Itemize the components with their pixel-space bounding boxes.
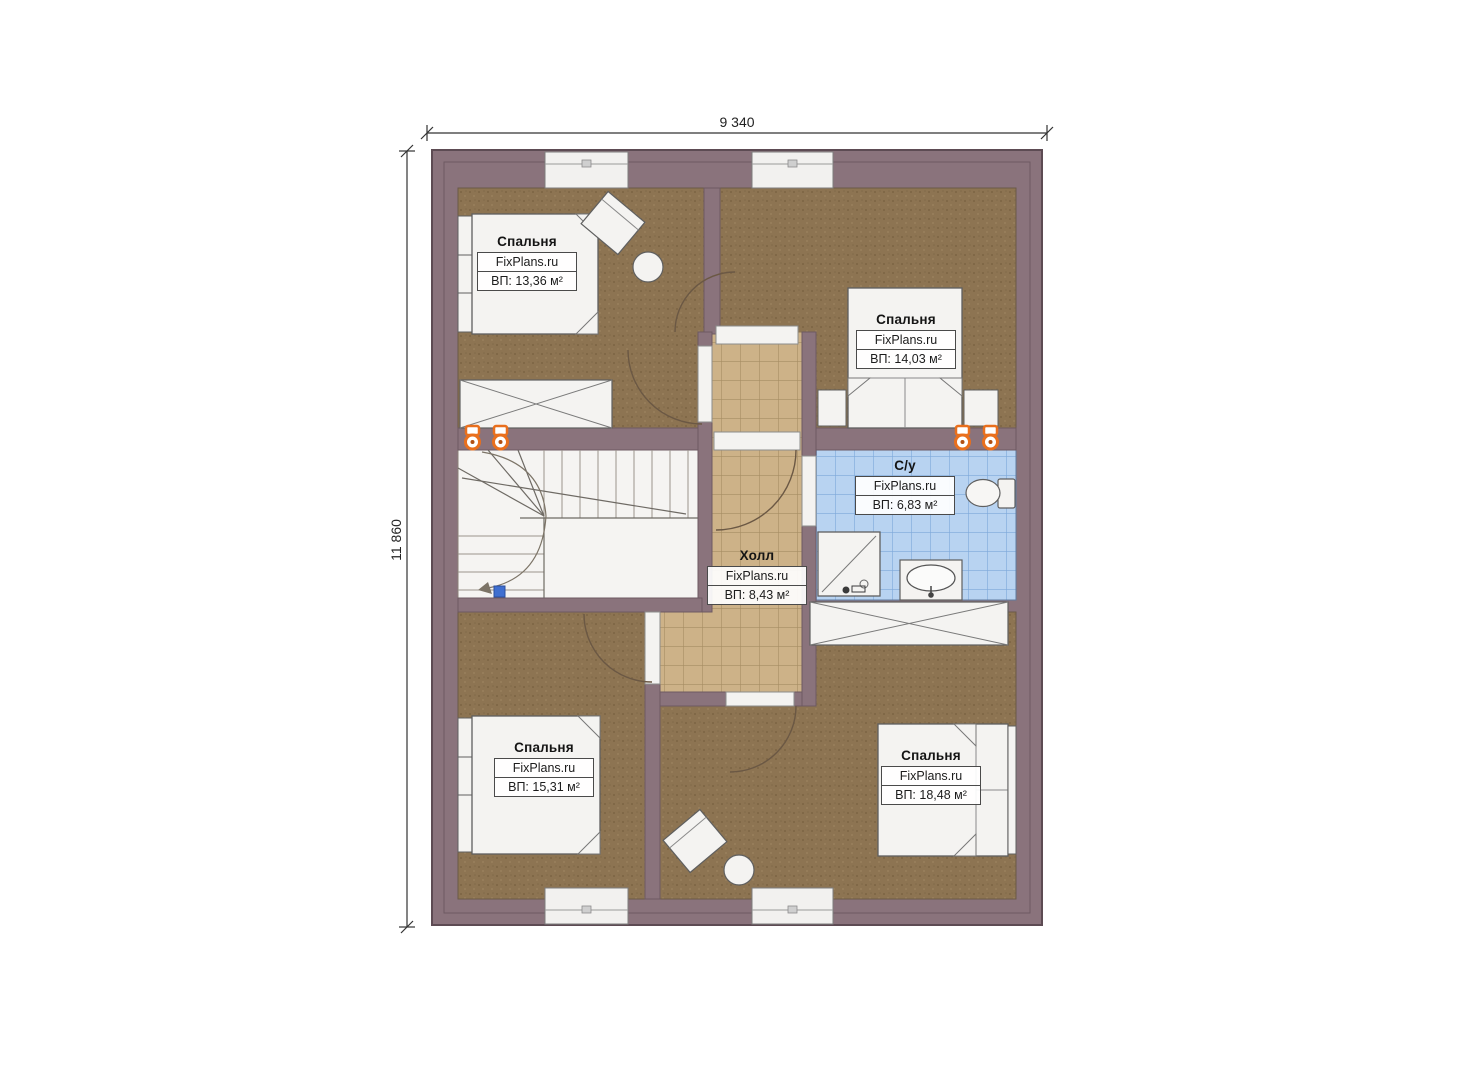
- radiator-icon: [956, 426, 970, 449]
- dimension-top: [421, 125, 1053, 141]
- radiator-icon: [984, 426, 998, 449]
- window: [752, 888, 833, 924]
- window: [545, 152, 628, 188]
- radiator-icon: [494, 426, 508, 449]
- toilet: [966, 479, 1015, 508]
- staircase-area: [458, 450, 698, 598]
- bed-bottom-right: [878, 724, 1016, 856]
- floor-plan: [0, 0, 1474, 1080]
- wardrobe-top-left: [460, 380, 612, 428]
- wardrobe-bottom-right: [810, 602, 1008, 645]
- stair-start-marker: [494, 586, 505, 597]
- sink: [900, 560, 962, 600]
- stool-bottom-right: [724, 855, 754, 885]
- shower: [818, 532, 880, 596]
- dimension-left: [399, 145, 415, 933]
- window: [752, 152, 833, 188]
- stool-top-left: [633, 252, 663, 282]
- bed-top-left: [458, 214, 598, 334]
- bed-bottom-left: [458, 716, 600, 854]
- radiator-icon: [466, 426, 480, 449]
- window: [545, 888, 628, 924]
